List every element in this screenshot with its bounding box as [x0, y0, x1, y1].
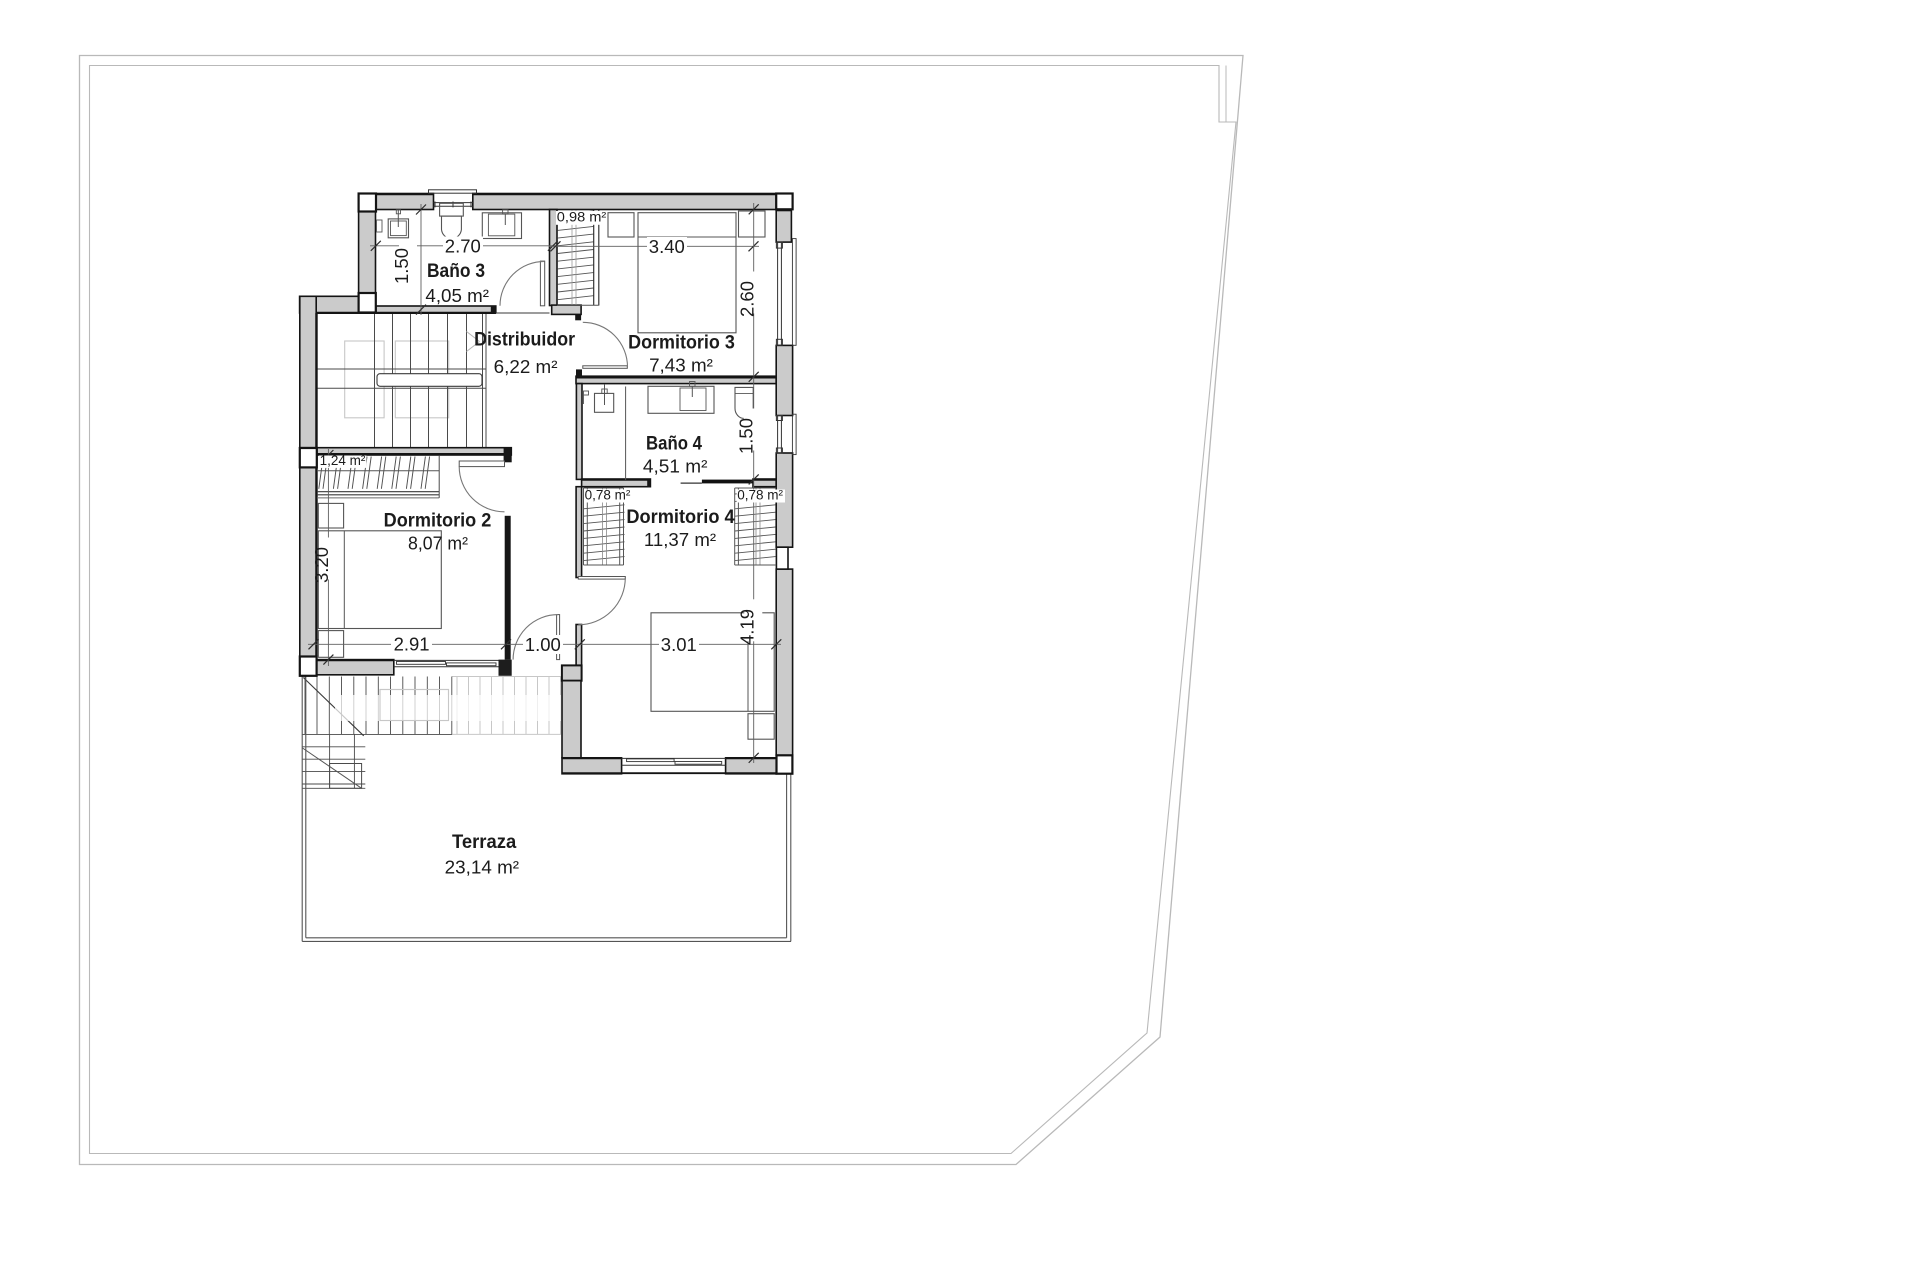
svg-text:7,43 m²: 7,43 m² [649, 356, 713, 376]
svg-text:4.19: 4.19 [737, 609, 757, 645]
svg-text:3.20: 3.20 [312, 547, 332, 583]
svg-text:Dormitorio 3: Dormitorio 3 [628, 333, 735, 354]
svg-text:Distribuidor: Distribuidor [474, 329, 576, 350]
svg-text:2.70: 2.70 [445, 237, 481, 257]
svg-text:Dormitorio 4: Dormitorio 4 [626, 507, 735, 528]
svg-text:11,37 m²: 11,37 m² [644, 530, 716, 550]
svg-text:0,78 m²: 0,78 m² [585, 487, 631, 503]
svg-text:23,14 m²: 23,14 m² [445, 858, 519, 878]
svg-text:Baño 3: Baño 3 [427, 261, 485, 282]
svg-text:1.50: 1.50 [392, 248, 412, 284]
svg-text:1.50: 1.50 [737, 418, 757, 454]
svg-text:Terraza: Terraza [452, 832, 517, 853]
svg-text:6,22 m²: 6,22 m² [494, 357, 558, 377]
svg-text:0,98 m²: 0,98 m² [557, 209, 607, 225]
svg-text:4,51 m²: 4,51 m² [643, 456, 708, 476]
svg-text:3.40: 3.40 [649, 237, 685, 257]
svg-text:1,24 m²: 1,24 m² [320, 452, 366, 468]
svg-text:Dormitorio 2: Dormitorio 2 [384, 511, 492, 532]
svg-text:4,05 m²: 4,05 m² [425, 286, 489, 306]
svg-text:2.91: 2.91 [394, 635, 430, 655]
svg-text:2.60: 2.60 [738, 281, 758, 317]
svg-text:8,07 m²: 8,07 m² [408, 533, 468, 553]
svg-text:3.01: 3.01 [661, 635, 697, 655]
svg-text:Baño 4: Baño 4 [646, 434, 702, 455]
svg-text:1.00: 1.00 [525, 635, 561, 655]
svg-text:0,78 m²: 0,78 m² [737, 487, 783, 503]
